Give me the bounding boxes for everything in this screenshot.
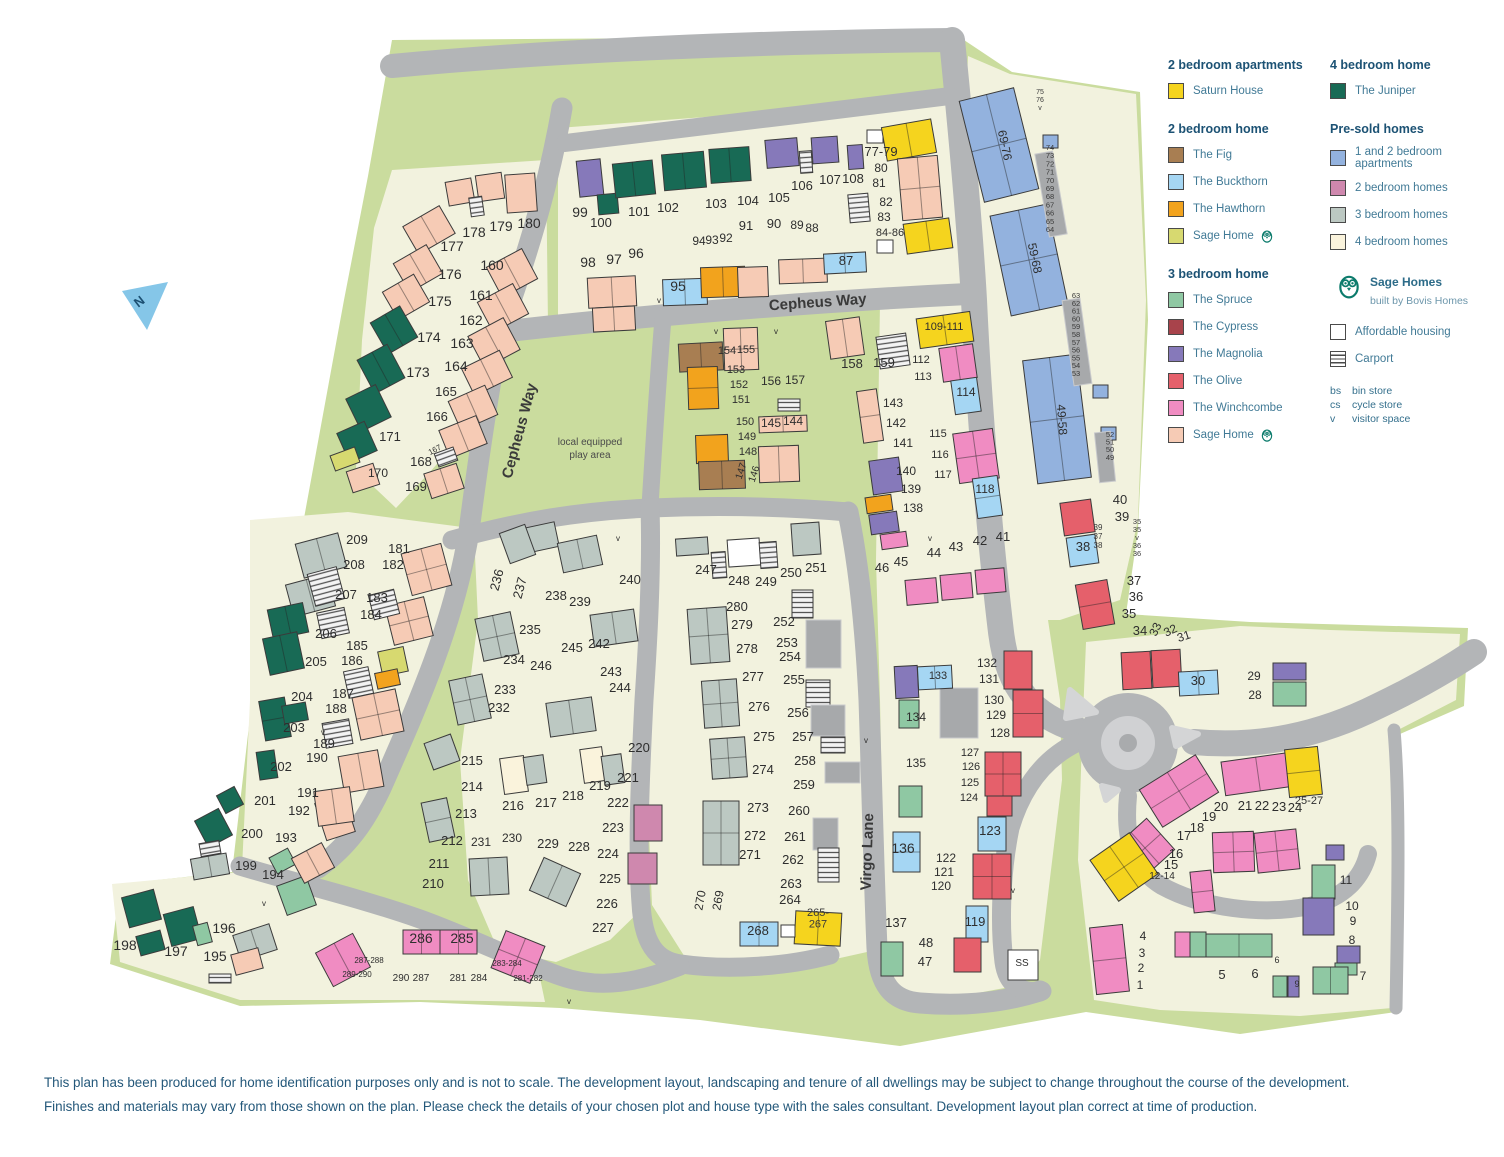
- plot-label: 136: [891, 840, 915, 856]
- legend-swatch-win: [1168, 400, 1184, 416]
- plot-label: 148: [739, 446, 757, 458]
- plot-label: 39: [1115, 509, 1129, 524]
- plot-label: 132: [977, 656, 997, 670]
- plot-label: 244: [609, 680, 631, 695]
- plot-block-carp: [778, 399, 800, 411]
- legend-section-title: 2 bedroom home: [1168, 122, 1328, 136]
- plot-label: 158: [841, 356, 863, 371]
- plot-label: 133: [929, 670, 947, 682]
- legend-section-title: 4 bedroom home: [1330, 58, 1498, 72]
- parking-label: 38: [1094, 541, 1103, 550]
- disclaimer-line-1: This plan has been produced for home ide…: [44, 1071, 1474, 1095]
- plot-label: 89: [790, 218, 804, 232]
- plot-block-sage3: [352, 689, 404, 740]
- plot-label: 156: [761, 374, 781, 388]
- plot-block-mag: [1326, 845, 1344, 860]
- parking-label: 64: [1046, 225, 1054, 234]
- plot-block-win: [1175, 932, 1190, 957]
- legend-swatch-spr: [1168, 292, 1184, 308]
- plot-block-sage3: [314, 787, 355, 827]
- legend-item: Saturn House: [1168, 82, 1328, 100]
- plot-block-spr: [1313, 967, 1348, 994]
- plot-label: 149: [738, 431, 756, 443]
- plot-label: 17: [1177, 828, 1191, 843]
- plot-block-haw: [687, 366, 718, 409]
- plot-label: 212: [441, 833, 463, 848]
- plot-block-aff: [727, 538, 761, 567]
- plot-block-oli: [1013, 690, 1043, 737]
- plot-label: 87: [839, 253, 853, 268]
- plot-block-ps3: [791, 522, 821, 556]
- plot-label: 120: [931, 879, 951, 893]
- legend-item-label: The Winchcombe: [1193, 402, 1282, 414]
- plot-label: 127: [961, 747, 979, 759]
- plot-block-ps3: [701, 679, 739, 728]
- legend-item-label: The Magnolia: [1193, 348, 1263, 360]
- plot-block-win: [880, 531, 908, 549]
- plot-label: 170: [368, 466, 388, 480]
- plot-label: 100: [590, 215, 612, 230]
- plot-label: 154: [718, 345, 736, 357]
- plot-label: 83: [877, 210, 891, 224]
- plot-block-mag: [765, 138, 799, 169]
- plot-label: 95: [670, 278, 686, 294]
- plot-label: 81: [872, 176, 886, 190]
- plot-label: 199: [235, 858, 257, 873]
- plot-label: 96: [628, 245, 644, 261]
- legend-item-label: Sage Home: [1193, 230, 1254, 242]
- legend-swatch-buck: [1168, 174, 1184, 190]
- plot-label: 201: [254, 793, 276, 808]
- plot-label: v: [1011, 886, 1015, 895]
- plot-block-park: [811, 705, 845, 736]
- sage-homes-subtitle: built by Bovis Homes: [1370, 295, 1468, 307]
- plot-label: 46: [875, 560, 889, 575]
- plot-block-ps3: [469, 857, 509, 896]
- plot-label: v: [321, 728, 325, 737]
- plot-label: 275: [753, 729, 775, 744]
- plot-label: 206: [315, 626, 337, 641]
- legend-item: The Buckthorn: [1168, 173, 1328, 191]
- plot-label: 164: [444, 358, 468, 374]
- plot-block-win: [939, 344, 977, 382]
- plot-label: 192: [288, 803, 310, 818]
- plot-block-carp: [806, 680, 830, 707]
- plot-label: 106: [791, 178, 813, 193]
- plot-label: v: [567, 997, 571, 1006]
- plot-block-spr: [1273, 976, 1287, 997]
- plot-label: 246: [530, 658, 552, 673]
- plot-label: 128: [990, 726, 1010, 740]
- plot-block-carp: [821, 737, 845, 753]
- plot-label: 271: [739, 847, 761, 862]
- parking-label: 36: [1133, 549, 1141, 558]
- plot-block-mag: [869, 511, 900, 535]
- plot-label: 224: [597, 846, 619, 861]
- plot-block-park: [940, 688, 978, 738]
- plot-label: 8: [1349, 933, 1356, 947]
- parking-label: v: [1038, 105, 1042, 112]
- plot-label: 233: [494, 682, 516, 697]
- plot-label: 230: [502, 831, 522, 845]
- plot-label: 42: [973, 533, 987, 548]
- plot-label: 25-27: [1295, 795, 1323, 807]
- area-label: local equipped: [558, 437, 623, 448]
- plot-block-jun: [662, 151, 707, 191]
- plot-label: 274: [752, 762, 774, 777]
- plot-label: 226: [596, 896, 618, 911]
- plot-label: 157: [785, 373, 805, 387]
- plot-label: 162: [459, 312, 483, 328]
- plot-label: 159: [873, 355, 895, 370]
- legend-section: Pre-sold homes1 and 2 bedroom apartments…: [1330, 122, 1498, 251]
- plot-block-mag: [576, 159, 604, 197]
- plot-label: 284: [471, 973, 488, 984]
- plot-label: 93: [705, 233, 719, 247]
- legend-item: 3 bedroom homes: [1330, 206, 1498, 224]
- plot-label: 213: [455, 806, 477, 821]
- plot-label: 229: [537, 836, 559, 851]
- legend-swatch-ps12: [1330, 150, 1346, 166]
- plot-label: 99: [572, 204, 588, 220]
- plot-label: 123: [979, 823, 1001, 838]
- plot-label: v: [262, 899, 266, 908]
- plot-label: 103: [705, 196, 727, 211]
- plot-label: 7: [1360, 969, 1367, 983]
- plot-block-aff: [867, 130, 883, 143]
- plot-label: 186: [341, 653, 363, 668]
- plot-label: 200: [241, 826, 263, 841]
- plot-label: 238: [545, 588, 567, 603]
- plot-label: 130: [984, 693, 1004, 707]
- plot-label: 183: [366, 590, 388, 605]
- plot-block-oli: [954, 938, 981, 972]
- plot-label: 208: [343, 557, 365, 572]
- plot-label: 196: [212, 920, 236, 936]
- plot-label: 174: [417, 329, 441, 345]
- plot-label: 161: [469, 287, 493, 303]
- legend-abbrev-bs: bsbin store: [1330, 385, 1498, 397]
- legend-item-label: The Juniper: [1355, 85, 1416, 97]
- plot-block-aff: [877, 240, 893, 253]
- plot-label: v: [657, 296, 661, 305]
- plot-block-win: [1212, 831, 1254, 872]
- plot-block-haw: [696, 434, 729, 463]
- plot-block-sage3: [826, 317, 865, 359]
- plot-block-carp: [209, 974, 231, 983]
- plot-label: 1: [1137, 978, 1144, 992]
- legend-abbrev-cs: cscycle store: [1330, 399, 1498, 411]
- plot-label: 109-111: [925, 321, 964, 333]
- plot-label: 273: [747, 800, 769, 815]
- plot-label: v: [774, 327, 778, 336]
- plot-label: 175: [428, 293, 452, 309]
- legend-item-label: 4 bedroom homes: [1355, 236, 1448, 248]
- legend-section-title: Pre-sold homes: [1330, 122, 1498, 136]
- legend-item-label: Sage Home: [1193, 429, 1254, 441]
- street-label: Virgo Lane: [858, 813, 878, 891]
- legend-section: 4 bedroom homeThe Juniper: [1330, 58, 1498, 100]
- plot-label: 228: [568, 839, 590, 854]
- plot-label: 166: [426, 409, 448, 424]
- plot-label: v: [928, 534, 932, 543]
- plot-label: 257: [792, 729, 814, 744]
- sage-homes-title: Sage Homes: [1370, 275, 1442, 289]
- plot-label: 18: [1190, 820, 1204, 835]
- plot-label: 151: [732, 394, 750, 406]
- legend-item-carport: Carport: [1330, 350, 1498, 368]
- plot-label: 268: [747, 923, 769, 938]
- plot-label: 22: [1255, 798, 1269, 813]
- plot-block-mag: [1337, 946, 1360, 963]
- plot-label: 215: [461, 753, 483, 768]
- plot-label: 92: [719, 231, 733, 245]
- plot-label: 80: [874, 161, 888, 175]
- plot-block-win: [1190, 870, 1215, 913]
- plot-label: 88: [805, 221, 819, 235]
- legend-item: Sage Home: [1168, 227, 1328, 245]
- legend-item-label: 1 and 2 bedroom apartments: [1355, 146, 1498, 170]
- plot-label: 259: [793, 777, 815, 792]
- plot-label: 204: [291, 689, 313, 704]
- plot-label: 129: [986, 708, 1006, 722]
- plot-label: 168: [410, 454, 432, 469]
- legend-item: 4 bedroom homes: [1330, 233, 1498, 251]
- legend-swatch-cyp: [1168, 319, 1184, 335]
- parking-label: 265-: [807, 907, 829, 919]
- plot-label: 283-284: [492, 959, 522, 968]
- plot-label: 107: [819, 172, 841, 187]
- legend-item-label: The Fig: [1193, 149, 1232, 161]
- plot-label: 182: [382, 557, 404, 572]
- plot-block-mag: [811, 136, 839, 164]
- plot-label: 179: [489, 218, 513, 234]
- plot-label: 91: [739, 218, 753, 233]
- plot-block-spr: [1190, 932, 1206, 957]
- plot-block-park: [806, 620, 841, 668]
- plot-block-sage3: [758, 445, 799, 482]
- plot-label: 198: [113, 937, 137, 953]
- legend-abbrev-v: vvisitor space: [1330, 413, 1498, 425]
- plot-label: 138: [903, 501, 923, 515]
- plot-label: 202: [270, 759, 292, 774]
- plot-label: 178: [462, 224, 486, 240]
- plot-label: 177: [440, 238, 464, 254]
- plot-label: 180: [517, 215, 541, 231]
- plot-block-jun: [709, 147, 751, 184]
- plot-block-sage3: [897, 155, 942, 220]
- plot-label: 223: [602, 820, 624, 835]
- plot-label: 260: [788, 803, 810, 818]
- plot-label: 10: [1345, 899, 1359, 913]
- plot-label: 163: [450, 335, 474, 351]
- plot-block-sage3: [737, 266, 768, 297]
- legend-item-label: 2 bedroom homes: [1355, 182, 1448, 194]
- plot-block-ps2: [628, 853, 657, 884]
- legend-item-label: The Olive: [1193, 375, 1242, 387]
- plot-label: 101: [628, 204, 650, 219]
- plot-label: 253: [776, 635, 798, 650]
- plot-label: 117: [934, 469, 952, 481]
- sage-owl-icon: [1260, 428, 1274, 442]
- legend-item-label: Saturn House: [1193, 85, 1263, 97]
- plot-label: 280: [726, 599, 748, 614]
- plot-label: 258: [794, 753, 816, 768]
- plot-label: 113: [914, 371, 932, 383]
- plot-block-spr: [881, 942, 903, 976]
- plot-label: 207: [335, 587, 357, 602]
- plot-label: 160: [480, 257, 504, 273]
- plot-label: 255: [783, 672, 805, 687]
- plot-label: 134: [906, 710, 926, 724]
- legend-swatch-jun: [1330, 83, 1346, 99]
- plot-label: 3: [1139, 946, 1146, 960]
- plot-label: 112: [912, 354, 930, 366]
- parking-label: 39: [1094, 523, 1103, 532]
- plot-label: 48: [919, 935, 933, 950]
- plot-label: 197: [164, 943, 188, 959]
- plot-label: 252: [773, 614, 795, 629]
- plot-label: 276: [748, 699, 770, 714]
- plot-label: 37: [1127, 573, 1141, 588]
- site-plan-page: 1771781791801761751741731711701671601611…: [0, 0, 1504, 1157]
- plot-label: 137: [885, 915, 907, 930]
- plot-label: 12-14: [1149, 871, 1175, 882]
- plot-block-mag: [847, 145, 864, 170]
- plot-label: 188: [325, 701, 347, 716]
- plot-label: 143: [883, 396, 903, 410]
- plot-block-carp: [759, 541, 778, 568]
- plot-block-spr: [899, 786, 922, 817]
- plot-label: 115: [929, 428, 947, 440]
- legend-item-label: The Buckthorn: [1193, 176, 1268, 188]
- plot-block-oli: [1004, 651, 1032, 689]
- legend-section: 3 bedroom homeThe SpruceThe CypressThe M…: [1168, 267, 1328, 444]
- plot-label: 279: [731, 617, 753, 632]
- plot-label: 205: [305, 654, 327, 669]
- plot-label: 189: [313, 736, 335, 751]
- plot-label: 126: [962, 761, 980, 773]
- north-arrow-icon: N: [122, 282, 168, 330]
- plot-label: 121: [934, 865, 954, 879]
- plot-label: 242: [588, 636, 610, 651]
- plot-label: 227: [592, 920, 614, 935]
- plot-label: 118: [975, 482, 994, 496]
- plot-label: 135: [906, 756, 926, 770]
- legend-item-label: The Hawthorn: [1193, 203, 1265, 215]
- plot-block-park: [825, 762, 860, 783]
- plot-label: 184: [360, 607, 382, 622]
- legend-item-label: 3 bedroom homes: [1355, 209, 1448, 221]
- legend-swatch-mag: [1168, 346, 1184, 362]
- plot-label: 231: [471, 835, 491, 849]
- plot-label: 119: [965, 914, 986, 929]
- plot-block-carp: [818, 848, 839, 882]
- plot-label: 245: [561, 640, 583, 655]
- legend-item: The Fig: [1168, 146, 1328, 164]
- legend-swatch-ps4: [1330, 234, 1346, 250]
- plot-block-carp: [469, 196, 485, 217]
- plot-block-mag: [894, 665, 919, 698]
- plot-label: 11: [1340, 873, 1353, 887]
- plot-block-win: [1254, 829, 1300, 873]
- plot-block-win: [953, 428, 1000, 483]
- plot-block-oli: [1121, 651, 1152, 689]
- plot-label: 5: [1218, 967, 1225, 982]
- plot-label: 193: [275, 830, 297, 845]
- plot-label: 248: [728, 573, 750, 588]
- plot-label: 84-86: [876, 227, 904, 239]
- plot-block-carp: [792, 590, 813, 618]
- plot-label: 144: [783, 414, 803, 428]
- plot-label: 94: [692, 234, 706, 248]
- plot-block-sat: [903, 218, 953, 254]
- plot-label: 40: [1113, 492, 1127, 507]
- plot-label: 262: [782, 852, 804, 867]
- sage-owl-icon: [1336, 273, 1362, 299]
- plot-label: 249: [755, 574, 777, 589]
- plot-block-win: [1090, 924, 1130, 994]
- road: [1394, 730, 1398, 1008]
- plot-block-oli: [973, 854, 1011, 899]
- plot-label: 2: [1138, 961, 1145, 975]
- plot-block-sage3: [338, 750, 384, 793]
- plot-block-ps12: [1093, 385, 1108, 398]
- plot-block-carp: [799, 151, 813, 174]
- plot-label: 98: [580, 254, 596, 270]
- plot-label: 203: [283, 720, 305, 735]
- plot-label: 277: [742, 669, 764, 684]
- plot-label: 150: [736, 416, 754, 428]
- plot-block-carp: [199, 840, 221, 856]
- plot-block-ps3: [703, 801, 739, 865]
- plot-label: 287-288: [354, 956, 384, 965]
- parking-label: 75: [1036, 89, 1044, 96]
- plot-label: 47: [918, 954, 932, 969]
- plot-label: 23: [1272, 799, 1286, 814]
- plot-label: 171: [379, 429, 401, 444]
- plot-label: 209: [346, 532, 368, 547]
- plot-label: 140: [896, 464, 916, 478]
- legend-swatch-haw: [1168, 201, 1184, 217]
- plot-block-win: [940, 573, 973, 601]
- parking-label: 49: [1106, 453, 1114, 462]
- plot-label: v: [616, 534, 620, 543]
- plot-label: v: [864, 736, 868, 745]
- plot-block-win: [905, 578, 938, 606]
- plot-label: 97: [606, 251, 622, 267]
- plot-label: 82: [879, 195, 893, 209]
- legend-item-label: The Cypress: [1193, 321, 1258, 333]
- plot-label: 43: [949, 539, 963, 554]
- legend-item: The Winchcombe: [1168, 399, 1328, 417]
- plot-block-ps3: [687, 607, 730, 665]
- plot-label: 155: [737, 344, 755, 356]
- plot-label: 191: [297, 785, 319, 800]
- plot-label: 240: [619, 572, 641, 587]
- parking-label: 76: [1036, 97, 1044, 104]
- plot-label: 235: [519, 622, 541, 637]
- plot-block-aff: [781, 925, 795, 937]
- plot-label: 116: [931, 449, 949, 461]
- plot-block-mag: [1273, 663, 1306, 680]
- legend-column: 2 bedroom apartmentsSaturn House2 bedroo…: [1168, 58, 1328, 466]
- plot-label: 153: [727, 364, 745, 376]
- legend-swatch-sage3: [1168, 427, 1184, 443]
- plot-label: 254: [779, 649, 801, 664]
- plot-block-sage3: [587, 276, 637, 308]
- plot-block-ps3: [546, 697, 596, 737]
